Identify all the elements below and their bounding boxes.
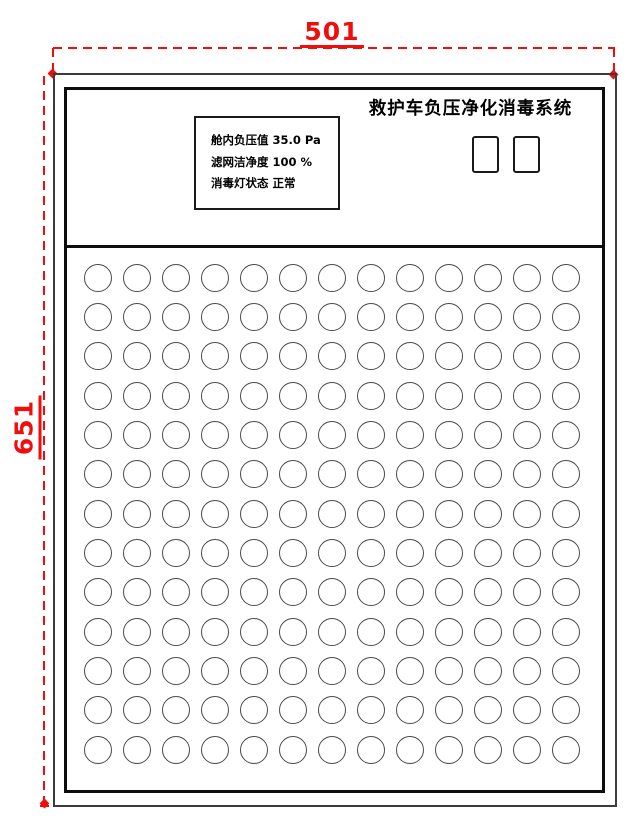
vent-hole — [162, 303, 190, 331]
vent-cell — [156, 455, 195, 494]
vent-cell — [117, 651, 156, 690]
vent-hole-grid — [78, 258, 585, 769]
vent-hole — [84, 578, 112, 606]
vent-cell — [273, 337, 312, 376]
status-line-filter: 滤网洁净度 100 % — [211, 152, 338, 174]
vent-cell — [507, 455, 546, 494]
vent-hole — [552, 382, 580, 410]
vent-cell — [468, 730, 507, 769]
vent-cell — [351, 533, 390, 572]
vent-hole — [552, 696, 580, 724]
vent-cell — [273, 612, 312, 651]
vent-hole — [513, 539, 541, 567]
vent-cell — [117, 691, 156, 730]
vent-cell — [429, 573, 468, 612]
system-title: 救护车负压净化消毒系统 — [358, 95, 583, 120]
vent-cell — [195, 691, 234, 730]
vent-hole — [318, 500, 346, 528]
panel-button-left[interactable] — [472, 136, 499, 173]
vent-cell — [468, 258, 507, 297]
vent-cell — [234, 415, 273, 454]
vent-hole — [123, 657, 151, 685]
vent-cell — [507, 573, 546, 612]
vent-hole — [84, 460, 112, 488]
vent-hole — [279, 382, 307, 410]
vent-hole — [201, 421, 229, 449]
vent-cell — [390, 494, 429, 533]
vent-cell — [156, 651, 195, 690]
vent-hole — [162, 264, 190, 292]
vent-cell — [507, 376, 546, 415]
vent-hole — [84, 500, 112, 528]
vent-hole — [513, 736, 541, 764]
vent-cell — [273, 297, 312, 336]
vent-cell — [195, 337, 234, 376]
vent-cell — [468, 651, 507, 690]
vent-hole — [396, 657, 424, 685]
vent-cell — [546, 651, 585, 690]
vent-cell — [117, 730, 156, 769]
vent-cell — [351, 455, 390, 494]
vent-hole — [318, 618, 346, 646]
vent-hole — [240, 421, 268, 449]
vent-cell — [351, 612, 390, 651]
vent-hole — [357, 500, 385, 528]
vent-hole — [123, 264, 151, 292]
vent-hole — [123, 696, 151, 724]
vent-hole — [162, 736, 190, 764]
vent-cell — [78, 691, 117, 730]
vent-cell — [195, 415, 234, 454]
vent-hole — [279, 736, 307, 764]
vent-hole — [513, 696, 541, 724]
vent-cell — [78, 258, 117, 297]
vent-hole — [123, 500, 151, 528]
vent-cell — [546, 337, 585, 376]
vent-hole — [279, 421, 307, 449]
vent-cell — [195, 258, 234, 297]
vent-cell — [351, 415, 390, 454]
vent-hole — [201, 696, 229, 724]
vent-cell — [351, 494, 390, 533]
vent-hole — [513, 303, 541, 331]
vent-cell — [390, 533, 429, 572]
dimension-line-left — [43, 76, 45, 806]
vent-cell — [234, 573, 273, 612]
vent-cell — [390, 337, 429, 376]
vent-hole — [357, 303, 385, 331]
vent-hole — [318, 264, 346, 292]
vent-cell — [234, 337, 273, 376]
vent-cell — [468, 415, 507, 454]
vent-hole — [84, 264, 112, 292]
dimension-height-label: 651 — [11, 396, 42, 460]
vent-hole — [318, 303, 346, 331]
vent-hole — [318, 578, 346, 606]
vent-cell — [351, 573, 390, 612]
vent-cell — [546, 455, 585, 494]
vent-hole — [84, 303, 112, 331]
vent-cell — [312, 612, 351, 651]
vent-cell — [312, 258, 351, 297]
vent-hole — [123, 618, 151, 646]
vent-hole — [435, 696, 463, 724]
vent-hole — [318, 696, 346, 724]
vent-cell — [195, 533, 234, 572]
vent-cell — [156, 337, 195, 376]
vent-cell — [507, 691, 546, 730]
vent-cell — [156, 415, 195, 454]
panel-button-right[interactable] — [513, 136, 540, 173]
vent-cell — [234, 297, 273, 336]
vent-cell — [234, 258, 273, 297]
vent-cell — [546, 730, 585, 769]
vent-hole — [396, 382, 424, 410]
vent-cell — [546, 533, 585, 572]
vent-cell — [312, 376, 351, 415]
vent-cell — [234, 494, 273, 533]
vent-hole — [396, 460, 424, 488]
vent-cell — [78, 651, 117, 690]
vent-cell — [468, 494, 507, 533]
vent-hole — [162, 696, 190, 724]
vent-hole — [357, 382, 385, 410]
vent-hole — [162, 382, 190, 410]
vent-hole — [279, 303, 307, 331]
vent-cell — [429, 612, 468, 651]
vent-hole — [513, 618, 541, 646]
vent-cell — [195, 376, 234, 415]
vent-cell — [234, 651, 273, 690]
vent-cell — [468, 455, 507, 494]
vent-cell — [468, 573, 507, 612]
vent-cell — [195, 494, 234, 533]
vent-cell — [546, 573, 585, 612]
vent-hole — [201, 736, 229, 764]
vent-cell — [312, 573, 351, 612]
vent-hole — [201, 303, 229, 331]
vent-cell — [507, 494, 546, 533]
vent-hole — [318, 657, 346, 685]
vent-hole — [279, 539, 307, 567]
vent-cell — [156, 258, 195, 297]
vent-cell — [468, 297, 507, 336]
vent-cell — [234, 730, 273, 769]
vent-cell — [351, 258, 390, 297]
vent-hole — [240, 342, 268, 370]
vent-cell — [117, 258, 156, 297]
vent-hole — [357, 736, 385, 764]
vent-cell — [117, 494, 156, 533]
vent-cell — [78, 730, 117, 769]
vent-cell — [234, 612, 273, 651]
vent-hole — [474, 303, 502, 331]
vent-hole — [552, 657, 580, 685]
vent-hole — [435, 500, 463, 528]
vent-hole — [201, 264, 229, 292]
vent-hole — [357, 460, 385, 488]
vent-hole — [84, 657, 112, 685]
vent-cell — [546, 258, 585, 297]
vent-hole — [552, 539, 580, 567]
vent-hole — [552, 578, 580, 606]
vent-cell — [546, 494, 585, 533]
vent-hole — [201, 657, 229, 685]
vent-cell — [429, 494, 468, 533]
vent-cell — [390, 376, 429, 415]
vent-cell — [468, 376, 507, 415]
vent-hole — [552, 342, 580, 370]
vent-hole — [84, 618, 112, 646]
vent-cell — [429, 297, 468, 336]
vent-hole — [552, 500, 580, 528]
vent-hole — [435, 460, 463, 488]
vent-cell — [390, 297, 429, 336]
vent-hole — [552, 618, 580, 646]
vent-hole — [474, 736, 502, 764]
vent-cell — [195, 651, 234, 690]
vent-cell — [468, 612, 507, 651]
vent-hole — [123, 382, 151, 410]
vent-cell — [546, 691, 585, 730]
vent-hole — [162, 460, 190, 488]
vent-cell — [156, 612, 195, 651]
vent-hole — [279, 342, 307, 370]
vent-hole — [201, 618, 229, 646]
vent-cell — [312, 533, 351, 572]
vent-hole — [123, 578, 151, 606]
vent-cell — [78, 494, 117, 533]
vent-hole — [396, 421, 424, 449]
vent-hole — [318, 736, 346, 764]
vent-cell — [390, 730, 429, 769]
vent-hole — [396, 578, 424, 606]
vent-cell — [156, 376, 195, 415]
header-divider — [67, 245, 602, 248]
vent-cell — [273, 730, 312, 769]
vent-cell — [429, 651, 468, 690]
vent-hole — [435, 382, 463, 410]
vent-cell — [429, 455, 468, 494]
vent-cell — [507, 612, 546, 651]
vent-cell — [195, 612, 234, 651]
vent-hole — [201, 460, 229, 488]
vent-cell — [351, 651, 390, 690]
vent-cell — [429, 258, 468, 297]
vent-cell — [312, 651, 351, 690]
vent-cell — [429, 337, 468, 376]
vent-hole — [396, 500, 424, 528]
vent-hole — [162, 578, 190, 606]
vent-cell — [78, 376, 117, 415]
vent-hole — [279, 618, 307, 646]
vent-hole — [396, 342, 424, 370]
vent-cell — [273, 376, 312, 415]
status-display-box: 舱内负压值 35.0 Pa 滤网洁净度 100 % 消毒灯状态 正常 — [194, 116, 340, 210]
vent-cell — [312, 730, 351, 769]
vent-hole — [162, 618, 190, 646]
vent-cell — [78, 455, 117, 494]
vent-cell — [273, 258, 312, 297]
status-line-uv-lamp: 消毒灯状态 正常 — [211, 173, 338, 195]
vent-hole — [318, 539, 346, 567]
vent-cell — [507, 337, 546, 376]
vent-hole — [513, 264, 541, 292]
vent-cell — [546, 415, 585, 454]
vent-cell — [273, 415, 312, 454]
vent-hole — [162, 500, 190, 528]
vent-cell — [78, 415, 117, 454]
vent-cell — [546, 376, 585, 415]
vent-cell — [195, 730, 234, 769]
vent-hole — [318, 382, 346, 410]
vent-hole — [474, 500, 502, 528]
vent-cell — [78, 533, 117, 572]
vent-cell — [273, 651, 312, 690]
vent-hole — [240, 264, 268, 292]
vent-cell — [234, 455, 273, 494]
vent-hole — [279, 264, 307, 292]
vent-cell — [390, 612, 429, 651]
vent-cell — [156, 691, 195, 730]
vent-cell — [507, 415, 546, 454]
vent-hole — [357, 539, 385, 567]
vent-hole — [552, 460, 580, 488]
vent-hole — [474, 382, 502, 410]
vent-cell — [117, 533, 156, 572]
vent-hole — [513, 421, 541, 449]
vent-hole — [240, 382, 268, 410]
vent-hole — [279, 696, 307, 724]
vent-cell — [429, 691, 468, 730]
vent-hole — [552, 264, 580, 292]
vent-hole — [435, 736, 463, 764]
vent-hole — [279, 500, 307, 528]
vent-hole — [84, 736, 112, 764]
vent-cell — [507, 730, 546, 769]
vent-hole — [162, 421, 190, 449]
vent-cell — [273, 533, 312, 572]
vent-hole — [474, 657, 502, 685]
vent-hole — [357, 342, 385, 370]
vent-hole — [279, 460, 307, 488]
vent-cell — [312, 337, 351, 376]
vent-hole — [123, 539, 151, 567]
vent-hole — [201, 342, 229, 370]
vent-hole — [435, 539, 463, 567]
vent-cell — [78, 337, 117, 376]
vent-hole — [240, 539, 268, 567]
vent-cell — [156, 494, 195, 533]
vent-cell — [390, 258, 429, 297]
vent-cell — [351, 730, 390, 769]
vent-cell — [117, 612, 156, 651]
vent-hole — [552, 303, 580, 331]
vent-hole — [435, 303, 463, 331]
vent-hole — [357, 657, 385, 685]
vent-hole — [240, 618, 268, 646]
vent-cell — [351, 691, 390, 730]
vent-cell — [117, 573, 156, 612]
vent-hole — [396, 264, 424, 292]
vent-hole — [474, 460, 502, 488]
vent-hole — [474, 696, 502, 724]
vent-cell — [117, 337, 156, 376]
vent-hole — [513, 342, 541, 370]
vent-cell — [468, 691, 507, 730]
vent-hole — [435, 618, 463, 646]
vent-cell — [273, 573, 312, 612]
vent-hole — [474, 618, 502, 646]
vent-cell — [351, 297, 390, 336]
vent-cell — [390, 455, 429, 494]
vent-cell — [156, 297, 195, 336]
vent-hole — [513, 382, 541, 410]
vent-hole — [435, 657, 463, 685]
vent-hole — [474, 539, 502, 567]
vent-cell — [507, 258, 546, 297]
vent-cell — [156, 533, 195, 572]
vent-hole — [201, 539, 229, 567]
vent-cell — [312, 691, 351, 730]
vent-hole — [396, 736, 424, 764]
vent-hole — [162, 657, 190, 685]
vent-hole — [123, 421, 151, 449]
vent-hole — [123, 303, 151, 331]
vent-cell — [312, 455, 351, 494]
vent-hole — [123, 342, 151, 370]
vent-hole — [123, 460, 151, 488]
vent-hole — [513, 657, 541, 685]
vent-cell — [78, 612, 117, 651]
vent-hole — [435, 342, 463, 370]
vent-cell — [507, 651, 546, 690]
vent-cell — [312, 415, 351, 454]
vent-hole — [474, 578, 502, 606]
vent-hole — [240, 500, 268, 528]
vent-cell — [234, 691, 273, 730]
vent-cell — [429, 415, 468, 454]
vent-cell — [390, 651, 429, 690]
vent-cell — [546, 612, 585, 651]
vent-hole — [240, 736, 268, 764]
vent-hole — [240, 578, 268, 606]
vent-hole — [279, 578, 307, 606]
vent-hole — [474, 264, 502, 292]
vent-hole — [474, 421, 502, 449]
vent-hole — [513, 460, 541, 488]
vent-hole — [240, 303, 268, 331]
vent-hole — [240, 460, 268, 488]
vent-cell — [117, 415, 156, 454]
vent-cell — [195, 573, 234, 612]
vent-hole — [240, 657, 268, 685]
vent-hole — [513, 500, 541, 528]
vent-cell — [234, 376, 273, 415]
vent-hole — [240, 696, 268, 724]
vent-hole — [318, 342, 346, 370]
vent-cell — [468, 533, 507, 572]
vent-cell — [156, 730, 195, 769]
engineering-drawing: { "colors": { "dimension_red": "#f20d0d"… — [0, 0, 643, 837]
vent-cell — [507, 533, 546, 572]
vent-hole — [84, 421, 112, 449]
vent-cell — [78, 573, 117, 612]
vent-cell — [234, 533, 273, 572]
vent-hole — [357, 264, 385, 292]
vent-cell — [546, 297, 585, 336]
vent-cell — [156, 573, 195, 612]
